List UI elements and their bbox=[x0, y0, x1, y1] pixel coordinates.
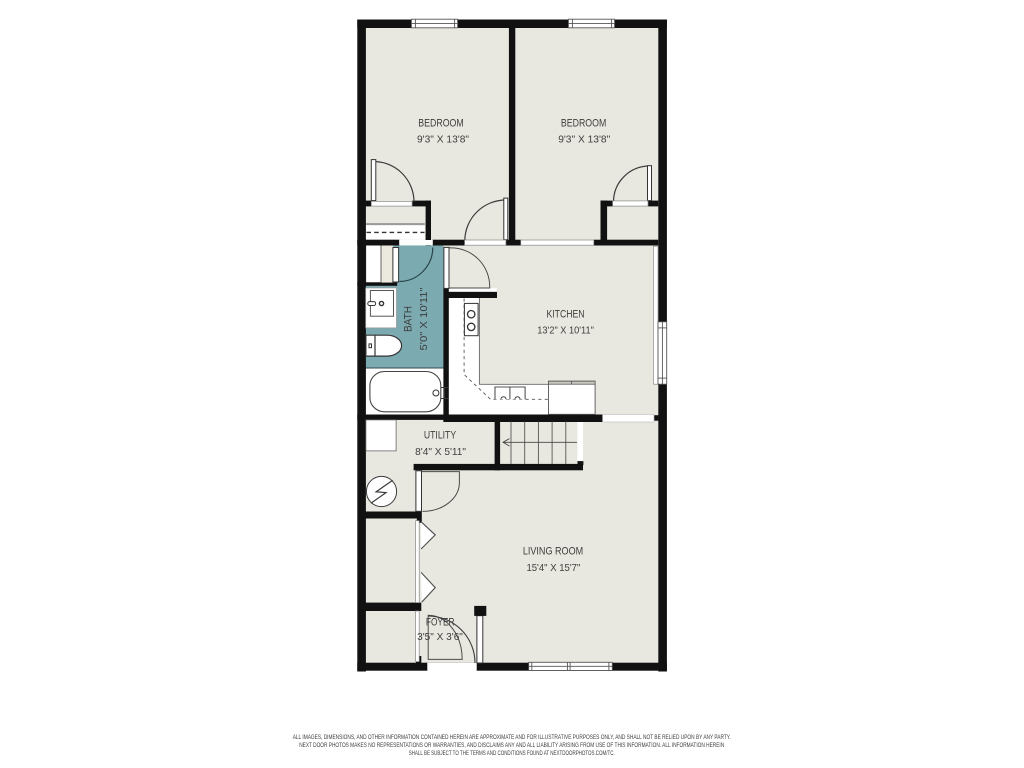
svg-text:FOYER: FOYER bbox=[426, 617, 455, 629]
svg-text:UTILITY: UTILITY bbox=[424, 429, 457, 441]
svg-text:BATH: BATH bbox=[402, 306, 414, 332]
svg-text:8'4" X 5'11": 8'4" X 5'11" bbox=[415, 446, 466, 458]
svg-text:LIVING ROOM: LIVING ROOM bbox=[523, 545, 583, 557]
svg-text:9'3" X 13'8": 9'3" X 13'8" bbox=[558, 134, 610, 146]
svg-text:15'4" X 15'7": 15'4" X 15'7" bbox=[526, 562, 580, 574]
svg-text:9'3" X 13'8": 9'3" X 13'8" bbox=[417, 134, 469, 146]
svg-text:13'2" X 10'11": 13'2" X 10'11" bbox=[537, 325, 594, 337]
svg-text:3'5" X 3'6": 3'5" X 3'6" bbox=[417, 631, 463, 643]
svg-text:5'0" X 10'11": 5'0" X 10'11" bbox=[418, 287, 430, 350]
svg-text:SHALL BE SUBJECT TO THE TERMS: SHALL BE SUBJECT TO THE TERMS AND CONDIT… bbox=[409, 750, 615, 757]
svg-text:BEDROOM: BEDROOM bbox=[418, 118, 463, 130]
svg-text:ALL IMAGES, DIMENSIONS, AND OT: ALL IMAGES, DIMENSIONS, AND OTHER INFORM… bbox=[293, 734, 731, 741]
svg-text:KITCHEN: KITCHEN bbox=[546, 308, 584, 320]
svg-text:BEDROOM: BEDROOM bbox=[561, 118, 606, 130]
svg-text:NEXT DOOR PHOTOS MAKES NO REPR: NEXT DOOR PHOTOS MAKES NO REPRESENTATION… bbox=[299, 742, 724, 749]
